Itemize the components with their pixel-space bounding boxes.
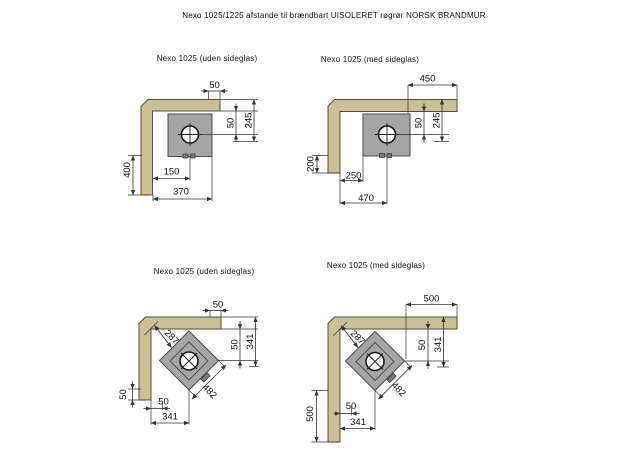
dim-label-bottom-inner: 250 bbox=[346, 171, 362, 182]
diagram-4-title: Nexo 1025 (med sideglas) bbox=[327, 261, 425, 270]
dim-label-bottom-inner: 50 bbox=[346, 401, 357, 412]
dim-label-right-inner: 50 bbox=[414, 118, 425, 129]
dim-label-bottom-inner: 150 bbox=[164, 167, 180, 178]
stove-foot bbox=[191, 154, 196, 158]
diagram-3-drawing: 50 287 482 50 341 50 50 341 bbox=[114, 292, 266, 430]
dim-label-right-inner: 50 bbox=[230, 339, 241, 350]
dim-label-left: 200 bbox=[306, 156, 317, 172]
diagram-2-drawing: 450 50 245 200 250 470 bbox=[300, 66, 465, 212]
stove-foot bbox=[387, 154, 392, 158]
dim-label-right-inner: 50 bbox=[226, 118, 237, 129]
dim-label-right-outer: 245 bbox=[244, 113, 255, 129]
diagram-1-title: Nexo 1025 (uden sideglas) bbox=[157, 54, 258, 63]
dim-label-diag-width: 482 bbox=[200, 382, 219, 401]
dim-label-top: 50 bbox=[213, 300, 224, 311]
stove-foot bbox=[183, 154, 188, 158]
diagram-1-drawing: 50 50 245 400 150 370 bbox=[110, 68, 268, 210]
dim-label-bottom-outer: 470 bbox=[358, 193, 374, 204]
dim-label-top: 500 bbox=[424, 294, 440, 305]
page-title: Nexo 1025/1225 afstande til brændbart UI… bbox=[182, 11, 486, 20]
dim-label-right-inner: 50 bbox=[417, 340, 428, 351]
stove-foot bbox=[380, 154, 385, 158]
dim-label-left: 400 bbox=[122, 162, 133, 178]
dim-label-right-outer: 341 bbox=[433, 337, 444, 353]
dim-label-left: 50 bbox=[118, 389, 129, 400]
diagram-2-title: Nexo 1025 (med sideglas) bbox=[321, 55, 419, 64]
dim-label-bottom-outer: 341 bbox=[162, 412, 178, 423]
dim-label-left: 500 bbox=[305, 406, 316, 422]
dim-label-bottom-outer: 341 bbox=[350, 417, 366, 428]
dim-label-right-outer: 341 bbox=[245, 334, 256, 350]
dim-label-top: 50 bbox=[209, 80, 220, 91]
dim-label-bottom-outer: 370 bbox=[173, 187, 189, 198]
dim-label-right-outer: 245 bbox=[432, 113, 443, 129]
diagram-3-title: Nexo 1025 (uden sideglas) bbox=[154, 267, 255, 276]
dim-label-diag-width: 482 bbox=[389, 380, 408, 399]
dim-label-top: 450 bbox=[420, 74, 436, 85]
dim-label-bottom-inner: 50 bbox=[158, 397, 169, 408]
diagram-4-drawing: 500 287 482 50 341 500 50 341 bbox=[300, 286, 462, 448]
